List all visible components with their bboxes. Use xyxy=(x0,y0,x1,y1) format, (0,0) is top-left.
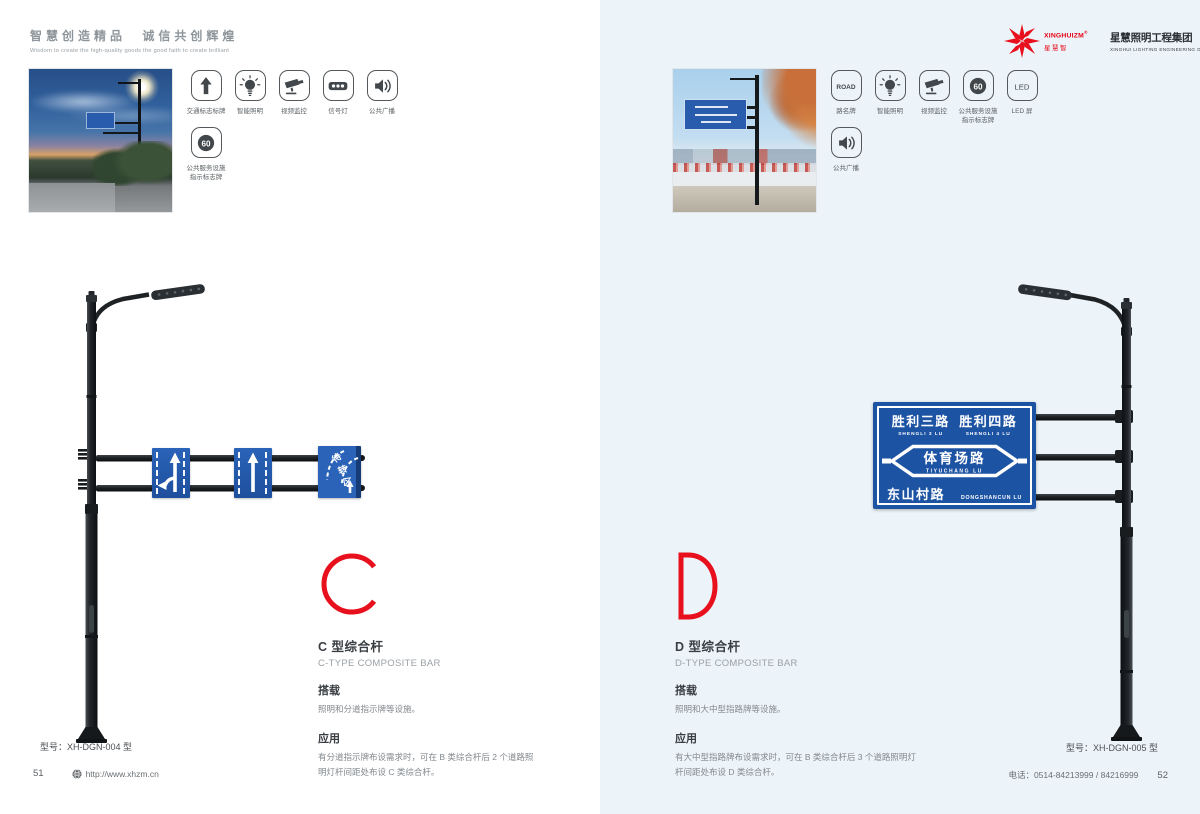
catalog-spread: 智慧创造精品 诚信共创辉煌 Wisdom to create the high-… xyxy=(0,0,1200,814)
spec-text-mount: 照明和大中型指路牌等设施。 xyxy=(675,702,917,717)
badge-road-icon: ROAD xyxy=(831,70,862,101)
website-url: http://www.xhzm.cn xyxy=(86,769,159,779)
footer-left: 51 http://www.xhzm.cn xyxy=(33,768,159,779)
spec-text-mount: 照明和分道指示牌等设施。 xyxy=(318,702,536,717)
product-title-en: D-TYPE COMPOSITE BAR xyxy=(675,658,917,669)
photo-cross-arm xyxy=(103,132,139,134)
camera-icon xyxy=(279,70,310,101)
slogan-english: Wisdom to create the high-quality goods … xyxy=(30,48,238,54)
photo-lamp-arm xyxy=(118,82,141,84)
photo-blue-sign xyxy=(684,99,747,130)
destination-name-cn: 东山村路 xyxy=(887,484,945,503)
company-name-cn: 星慧照明工程集团 xyxy=(1110,30,1200,45)
c-type-description: C 型综合杆 C-TYPE COMPOSITE BAR 搭载 照明和分道指示牌等… xyxy=(318,636,536,780)
feature-label: 视频监控 xyxy=(281,107,307,116)
spec-text-application: 有大中型指路牌布设需求时，可在 B 类综合杆后 3 个道路照明灯杆间距处布设 D… xyxy=(675,750,917,780)
feature-label: 公共服务设施指示标志牌 xyxy=(959,107,998,126)
photo-road xyxy=(29,183,115,212)
feature-row-2: 公共广播 xyxy=(824,127,868,173)
globe-icon xyxy=(72,769,82,779)
brand-name-cn: 星慧智 xyxy=(1044,42,1106,52)
bulb-icon xyxy=(875,70,906,101)
photo-flowers xyxy=(673,163,816,172)
feature-label: 智能照明 xyxy=(877,107,903,116)
photo-lamp-glow xyxy=(125,70,159,104)
header-slogan: 智慧创造精品 诚信共创辉煌 Wisdom to create the high-… xyxy=(30,27,238,54)
feature-badge-led: LEDLED 屏 xyxy=(1000,70,1044,126)
camera-icon xyxy=(919,70,950,101)
feature-speaker: 公共广播 xyxy=(360,70,404,116)
letter-c-graphic xyxy=(320,549,382,619)
destination-name-en: SHENGLI 4 LU xyxy=(959,432,1017,437)
spec-heading-mount: 搭载 xyxy=(675,682,917,698)
company-name-en: XINGHUI LIGHTING ENGINEERING GROUP xyxy=(1110,47,1200,52)
svg-text:LED: LED xyxy=(1015,82,1030,91)
feature-label: 公共广播 xyxy=(369,107,395,116)
badge-60-icon: 60 xyxy=(963,70,994,101)
speaker-icon xyxy=(367,70,398,101)
feature-label: 公共广播 xyxy=(833,164,859,173)
double-arrow-road-band: 体育场路 TIYUCHANG LU xyxy=(882,442,1027,480)
night-street-photo xyxy=(28,68,173,213)
road-name-en: TIYUCHANG LU xyxy=(926,469,983,475)
feature-label: 信号灯 xyxy=(328,107,348,116)
model-number: 型号：XH-DGN-005 型 xyxy=(1066,741,1158,754)
speaker-icon xyxy=(831,127,862,158)
svg-text:ROAD: ROAD xyxy=(836,83,855,90)
registered-mark: ® xyxy=(1084,30,1088,35)
spec-text-application: 有分道指示牌布设需求时，可在 B 类综合杆后 2 个道路照明灯杆间距处布设 C … xyxy=(318,750,536,780)
destination-left: 胜利三路 SHENGLI 3 LU xyxy=(892,411,950,437)
feature-camera: 视频监控 xyxy=(272,70,316,116)
feature-badge-60: 60公共服务设施指示标志牌 xyxy=(184,127,228,183)
logo-brand-block: XINGHUIZM® 星慧智 xyxy=(1044,30,1106,51)
spec-heading-application: 应用 xyxy=(675,730,917,746)
destination-name-en: DONGSHANCUN LU xyxy=(961,495,1022,501)
destination-name-cn: 胜利三路 xyxy=(892,411,950,430)
brand-name: XINGHUIZM xyxy=(1044,33,1084,40)
feature-camera: 视频监控 xyxy=(912,70,956,126)
product-title-cn: D 型综合杆 xyxy=(675,636,917,655)
destination-name-en: SHENGLI 3 LU xyxy=(892,432,950,437)
spec-heading-application: 应用 xyxy=(318,730,536,746)
footer-right: 电话：0514-84213999 / 84216999 52 xyxy=(1008,769,1168,781)
phone-number: 电话：0514-84213999 / 84216999 xyxy=(1008,769,1138,781)
road-direction-sign: 胜利三路 SHENGLI 3 LU 胜利四路 SHENGLI 4 LU 体育场路… xyxy=(873,402,1036,509)
badge-60-icon: 60 xyxy=(191,127,222,158)
badge-led-icon: LED xyxy=(1007,70,1038,101)
lane-sign-straight xyxy=(234,448,272,498)
lane-sign-straight-left xyxy=(152,448,190,498)
feature-label: LED 屏 xyxy=(1012,107,1033,116)
feature-row-1: 交通标志标牌智能照明视频监控信号灯公共广播 xyxy=(184,70,404,116)
sign-row-3: 东山村路 DONGSHANCUN LU xyxy=(887,484,1022,503)
logo-star-icon xyxy=(1002,22,1042,60)
feature-bulb: 智能照明 xyxy=(228,70,272,116)
page-right: XINGHUIZM® 星慧智 星慧照明工程集团 XINGHUI LIGHTING… xyxy=(600,0,1200,814)
product-title-en: C-TYPE COMPOSITE BAR xyxy=(318,658,536,669)
letter-d-graphic xyxy=(674,552,730,620)
feature-arrow-up: 交通标志标牌 xyxy=(184,70,228,116)
logo-company-block: 星慧照明工程集团 XINGHUI LIGHTING ENGINEERING GR… xyxy=(1110,30,1200,53)
day-street-photo xyxy=(672,68,817,213)
company-logo: XINGHUIZM® 星慧智 星慧照明工程集团 XINGHUI LIGHTING… xyxy=(1002,22,1200,60)
d-type-description: D 型综合杆 D-TYPE COMPOSITE BAR 搭载 照明和大中型指路牌… xyxy=(675,636,917,780)
page-number: 51 xyxy=(33,768,44,779)
model-number: 型号：XH-DGN-004 型 xyxy=(40,740,132,753)
page-left: 智慧创造精品 诚信共创辉煌 Wisdom to create the high-… xyxy=(0,0,600,814)
slogan-chinese: 智慧创造精品 诚信共创辉煌 xyxy=(30,27,238,44)
feature-label: 视频监控 xyxy=(921,107,947,116)
feature-label: 公共服务设施指示标志牌 xyxy=(187,164,226,183)
feature-badge-60: 60公共服务设施指示标志牌 xyxy=(956,70,1000,126)
bulb-icon xyxy=(235,70,266,101)
photo-pavement xyxy=(673,186,816,212)
feature-row-2: 60公共服务设施指示标志牌 xyxy=(184,127,228,183)
street-lamp-head xyxy=(151,284,206,301)
feature-speaker: 公共广播 xyxy=(824,127,868,173)
svg-text:60: 60 xyxy=(201,139,211,148)
product-title-cn: C 型综合杆 xyxy=(318,636,536,655)
street-lamp-head xyxy=(1018,284,1073,301)
wait-sign-char: 区 xyxy=(342,474,353,488)
road-name-cn: 体育场路 xyxy=(924,450,986,466)
arrow-up-icon xyxy=(191,70,222,101)
photo-lamp-arm xyxy=(730,78,756,81)
straight-arrow-icon xyxy=(234,448,272,498)
svg-text:60: 60 xyxy=(973,82,983,91)
spec-heading-mount: 搭载 xyxy=(318,682,536,698)
photo-trees xyxy=(93,141,172,187)
page-number: 52 xyxy=(1157,770,1168,781)
website-row: http://www.xhzm.cn xyxy=(72,769,159,779)
destination-right: 胜利四路 SHENGLI 4 LU xyxy=(959,411,1017,437)
feature-badge-road: ROAD路名牌 xyxy=(824,70,868,126)
feature-label: 交通标志标牌 xyxy=(187,107,226,116)
feature-label: 路名牌 xyxy=(836,107,856,116)
signal-icon xyxy=(323,70,354,101)
photo-blue-sign xyxy=(86,112,115,129)
left-turn-waiting-area-sign: 待 转 区 xyxy=(318,446,361,498)
destination-name-cn: 胜利四路 xyxy=(959,411,1017,430)
photo-pole xyxy=(755,75,759,205)
photo-autumn-tree xyxy=(762,68,817,155)
feature-signal: 信号灯 xyxy=(316,70,360,116)
straight-left-arrow-icon xyxy=(152,448,190,498)
feature-bulb: 智能照明 xyxy=(868,70,912,126)
sign-row-1: 胜利三路 SHENGLI 3 LU 胜利四路 SHENGLI 4 LU xyxy=(873,411,1036,437)
feature-label: 智能照明 xyxy=(237,107,263,116)
feature-row-1: ROAD路名牌智能照明视频监控60公共服务设施指示标志牌LEDLED 屏 xyxy=(824,70,1044,126)
